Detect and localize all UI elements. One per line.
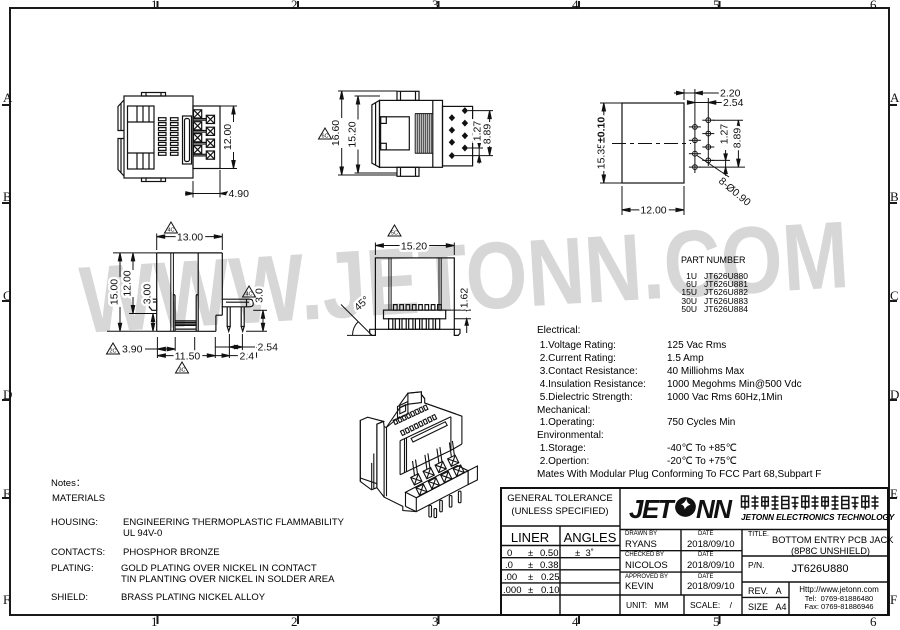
svg-text:NN: NN bbox=[696, 494, 733, 524]
svg-text:JET: JET bbox=[629, 494, 676, 524]
